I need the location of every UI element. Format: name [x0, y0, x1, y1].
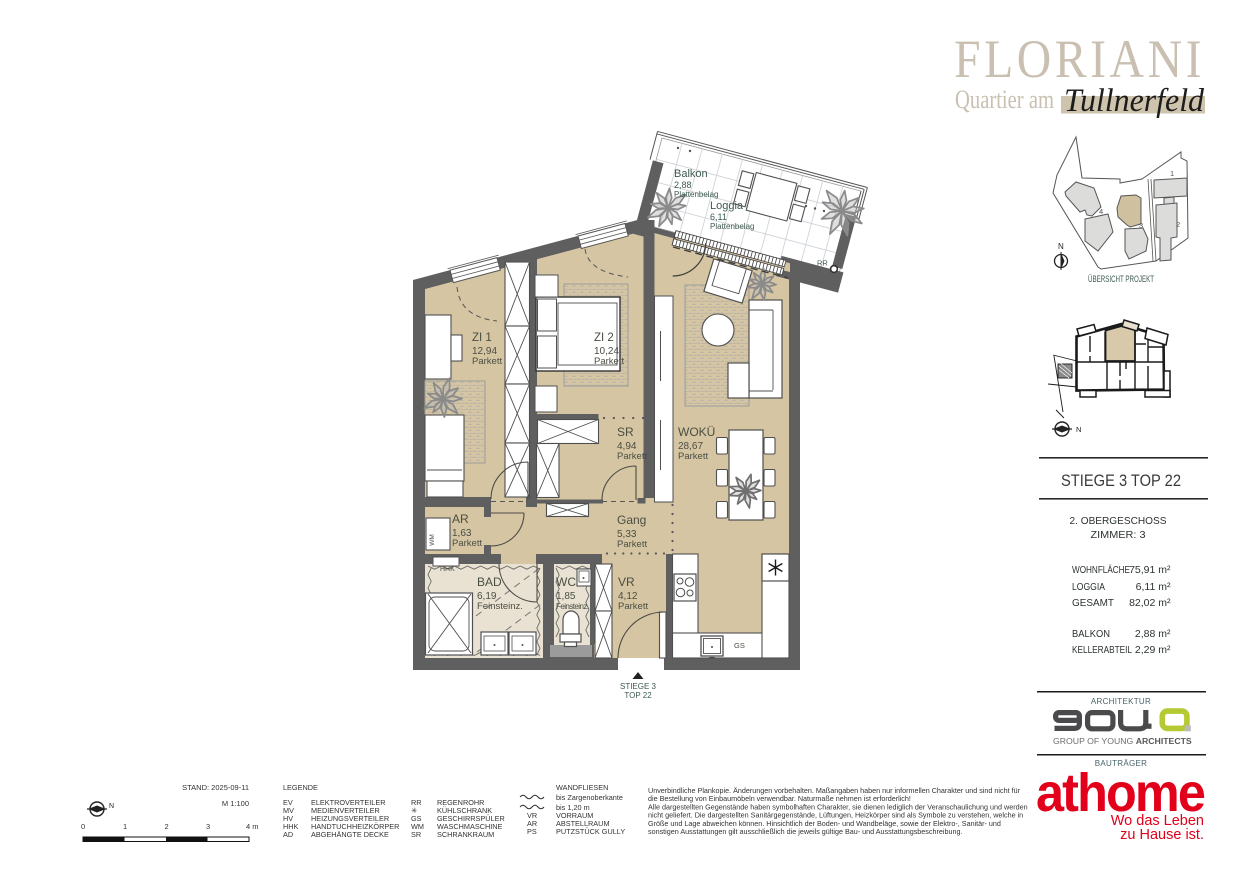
svg-text:2: 2	[1176, 220, 1180, 229]
svg-text:GROUP OF YOUNG ARCHITECTS: GROUP OF YOUNG ARCHITECTS	[1053, 736, 1192, 746]
svg-text:4 m: 4 m	[246, 822, 259, 831]
svg-text:HHK: HHK	[440, 566, 455, 573]
svg-text:M 1:100: M 1:100	[222, 799, 249, 808]
svg-text:Parkett: Parkett	[472, 356, 502, 367]
svg-text:3: 3	[206, 822, 210, 831]
svg-text:1: 1	[1170, 169, 1174, 178]
svg-text:WOKÜ: WOKÜ	[678, 425, 715, 439]
svg-text:LOGGIA: LOGGIA	[1072, 581, 1105, 593]
svg-text:STAND: 2025-09-11: STAND: 2025-09-11	[182, 783, 249, 792]
svg-text:75,91 m²: 75,91 m²	[1129, 564, 1171, 576]
svg-text:GESAMT: GESAMT	[1072, 597, 1115, 609]
svg-text:Balkon: Balkon	[674, 168, 708, 180]
svg-text:2: 2	[165, 822, 169, 831]
svg-text:WANDFLIESEN: WANDFLIESEN	[556, 783, 608, 792]
svg-text:PUTZSTÜCK GULLY: PUTZSTÜCK GULLY	[556, 827, 625, 836]
svg-text:STIEGE 3 TOP 22: STIEGE 3 TOP 22	[1061, 471, 1181, 490]
svg-text:Parkett: Parkett	[617, 539, 647, 550]
svg-text:Feinsteinz.: Feinsteinz.	[556, 602, 589, 611]
svg-text:Loggia: Loggia	[710, 200, 744, 212]
svg-text:FLORIANI: FLORIANI	[954, 29, 1205, 89]
svg-text:2,29 m²: 2,29 m²	[1135, 644, 1171, 656]
svg-text:Parkett: Parkett	[678, 451, 708, 462]
svg-text:LEGENDE: LEGENDE	[283, 783, 318, 792]
svg-text:BALKON: BALKON	[1072, 628, 1110, 640]
svg-text:WC: WC	[556, 575, 576, 589]
svg-text:Feinsteinz.: Feinsteinz.	[477, 601, 523, 612]
svg-text:Parkett: Parkett	[452, 538, 482, 549]
svg-text:2,88 m²: 2,88 m²	[1135, 628, 1171, 640]
svg-text:0: 0	[81, 822, 85, 831]
svg-text:AR: AR	[452, 512, 469, 526]
svg-text:N: N	[1076, 425, 1081, 434]
svg-text:AD: AD	[283, 830, 293, 839]
svg-text:4: 4	[1099, 207, 1103, 216]
svg-text:SR: SR	[411, 830, 421, 839]
svg-text:Plattenbelag: Plattenbelag	[674, 190, 718, 199]
svg-text:ZIMMER: 3: ZIMMER: 3	[1091, 529, 1146, 541]
svg-text:3: 3	[1139, 221, 1143, 230]
svg-text:ARCHITEKTUR: ARCHITEKTUR	[1091, 697, 1151, 706]
svg-text:Parkett: Parkett	[594, 356, 624, 367]
svg-text:2,88: 2,88	[674, 180, 692, 190]
svg-text:N: N	[109, 803, 114, 810]
svg-text:6,11: 6,11	[710, 212, 727, 222]
svg-text:Quartier am: Quartier am	[955, 85, 1054, 114]
svg-text:TOP 22: TOP 22	[624, 691, 652, 700]
svg-text:bis Zargenoberkante: bis Zargenoberkante	[556, 793, 623, 802]
svg-text:VR: VR	[618, 575, 635, 589]
svg-text:ZI 1: ZI 1	[472, 332, 492, 344]
svg-text:ÜBERSICHT PROJEKT: ÜBERSICHT PROJEKT	[1088, 274, 1154, 284]
svg-text:Plattenbelag: Plattenbelag	[710, 222, 754, 231]
svg-text:Parkett: Parkett	[617, 451, 647, 462]
svg-text:82,02 m²: 82,02 m²	[1129, 597, 1171, 609]
svg-text:ABGEHÄNGTE DECKE: ABGEHÄNGTE DECKE	[311, 830, 389, 839]
svg-text:SR: SR	[617, 425, 634, 439]
svg-text:2. OBERGESCHOSS: 2. OBERGESCHOSS	[1070, 515, 1167, 527]
svg-text:1: 1	[123, 822, 127, 831]
svg-text:WOHNFLÄCHE: WOHNFLÄCHE	[1072, 564, 1130, 576]
svg-text:SCHRANKRAUM: SCHRANKRAUM	[437, 830, 494, 839]
svg-text:Parkett: Parkett	[618, 601, 648, 612]
svg-text:Tullnerfeld: Tullnerfeld	[1064, 83, 1204, 119]
svg-text:1,85: 1,85	[556, 591, 576, 602]
svg-text:WM: WM	[429, 534, 436, 546]
svg-text:6,11 m²: 6,11 m²	[1136, 581, 1171, 593]
svg-text:ZI 2: ZI 2	[594, 332, 614, 344]
svg-text:BAD: BAD	[477, 575, 502, 589]
svg-text:zu Hause ist.: zu Hause ist.	[1120, 827, 1204, 843]
svg-text:N: N	[1058, 242, 1064, 251]
svg-text:GS: GS	[734, 641, 745, 650]
svg-text:KELLERABTEIL: KELLERABTEIL	[1072, 644, 1132, 656]
svg-text:PS: PS	[527, 827, 537, 836]
svg-text:Gang: Gang	[617, 513, 646, 527]
svg-text:sonstigen Ausstattungen gilt a: sonstigen Ausstattungen gilt ausschließl…	[648, 827, 962, 836]
svg-text:STIEGE 3: STIEGE 3	[620, 682, 657, 691]
svg-text:RR: RR	[817, 259, 828, 268]
